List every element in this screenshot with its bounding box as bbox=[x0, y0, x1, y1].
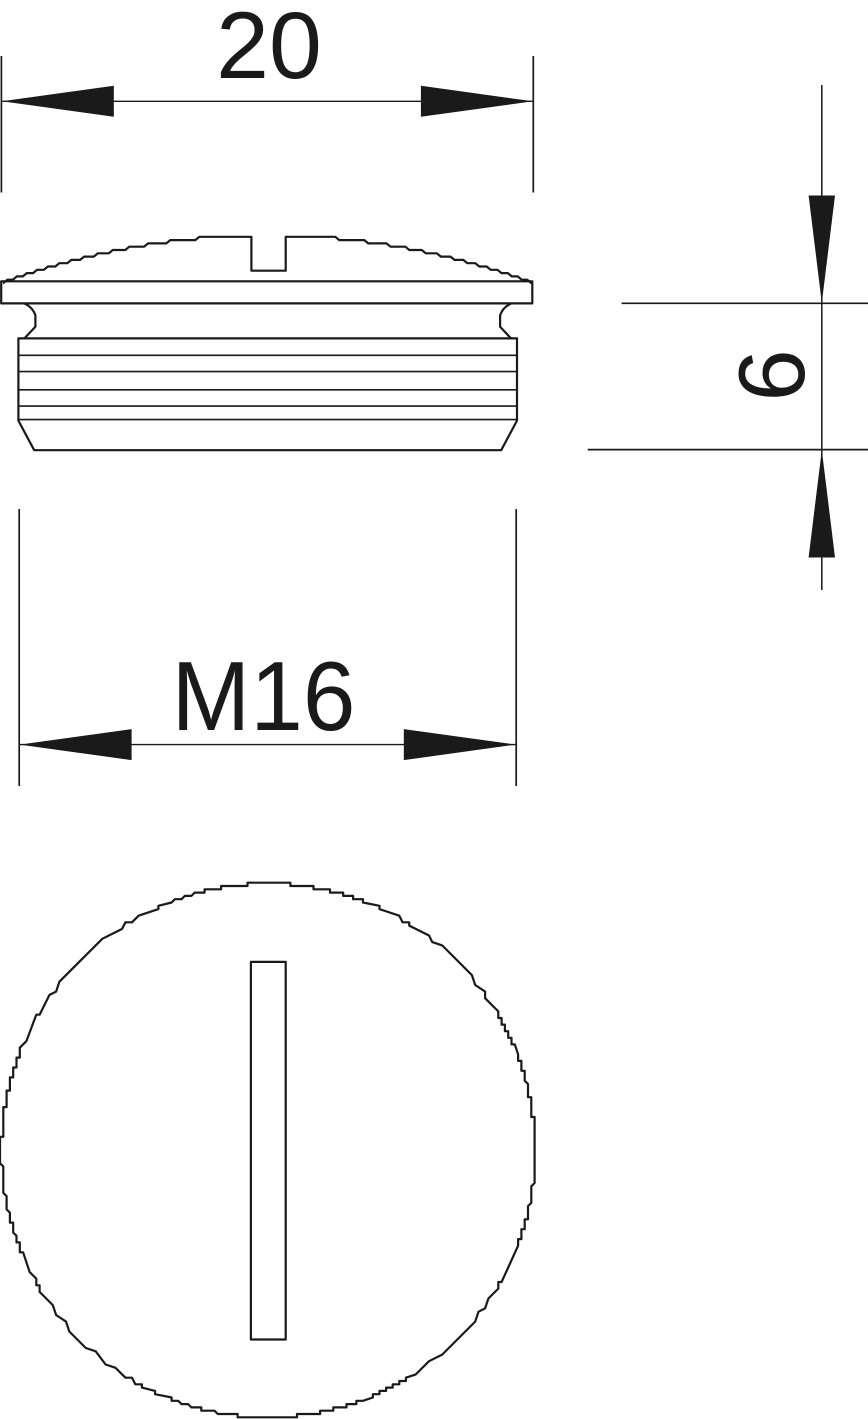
svg-text:20: 20 bbox=[216, 0, 322, 99]
svg-text:M16: M16 bbox=[172, 641, 356, 751]
svg-text:6: 6 bbox=[719, 349, 824, 401]
